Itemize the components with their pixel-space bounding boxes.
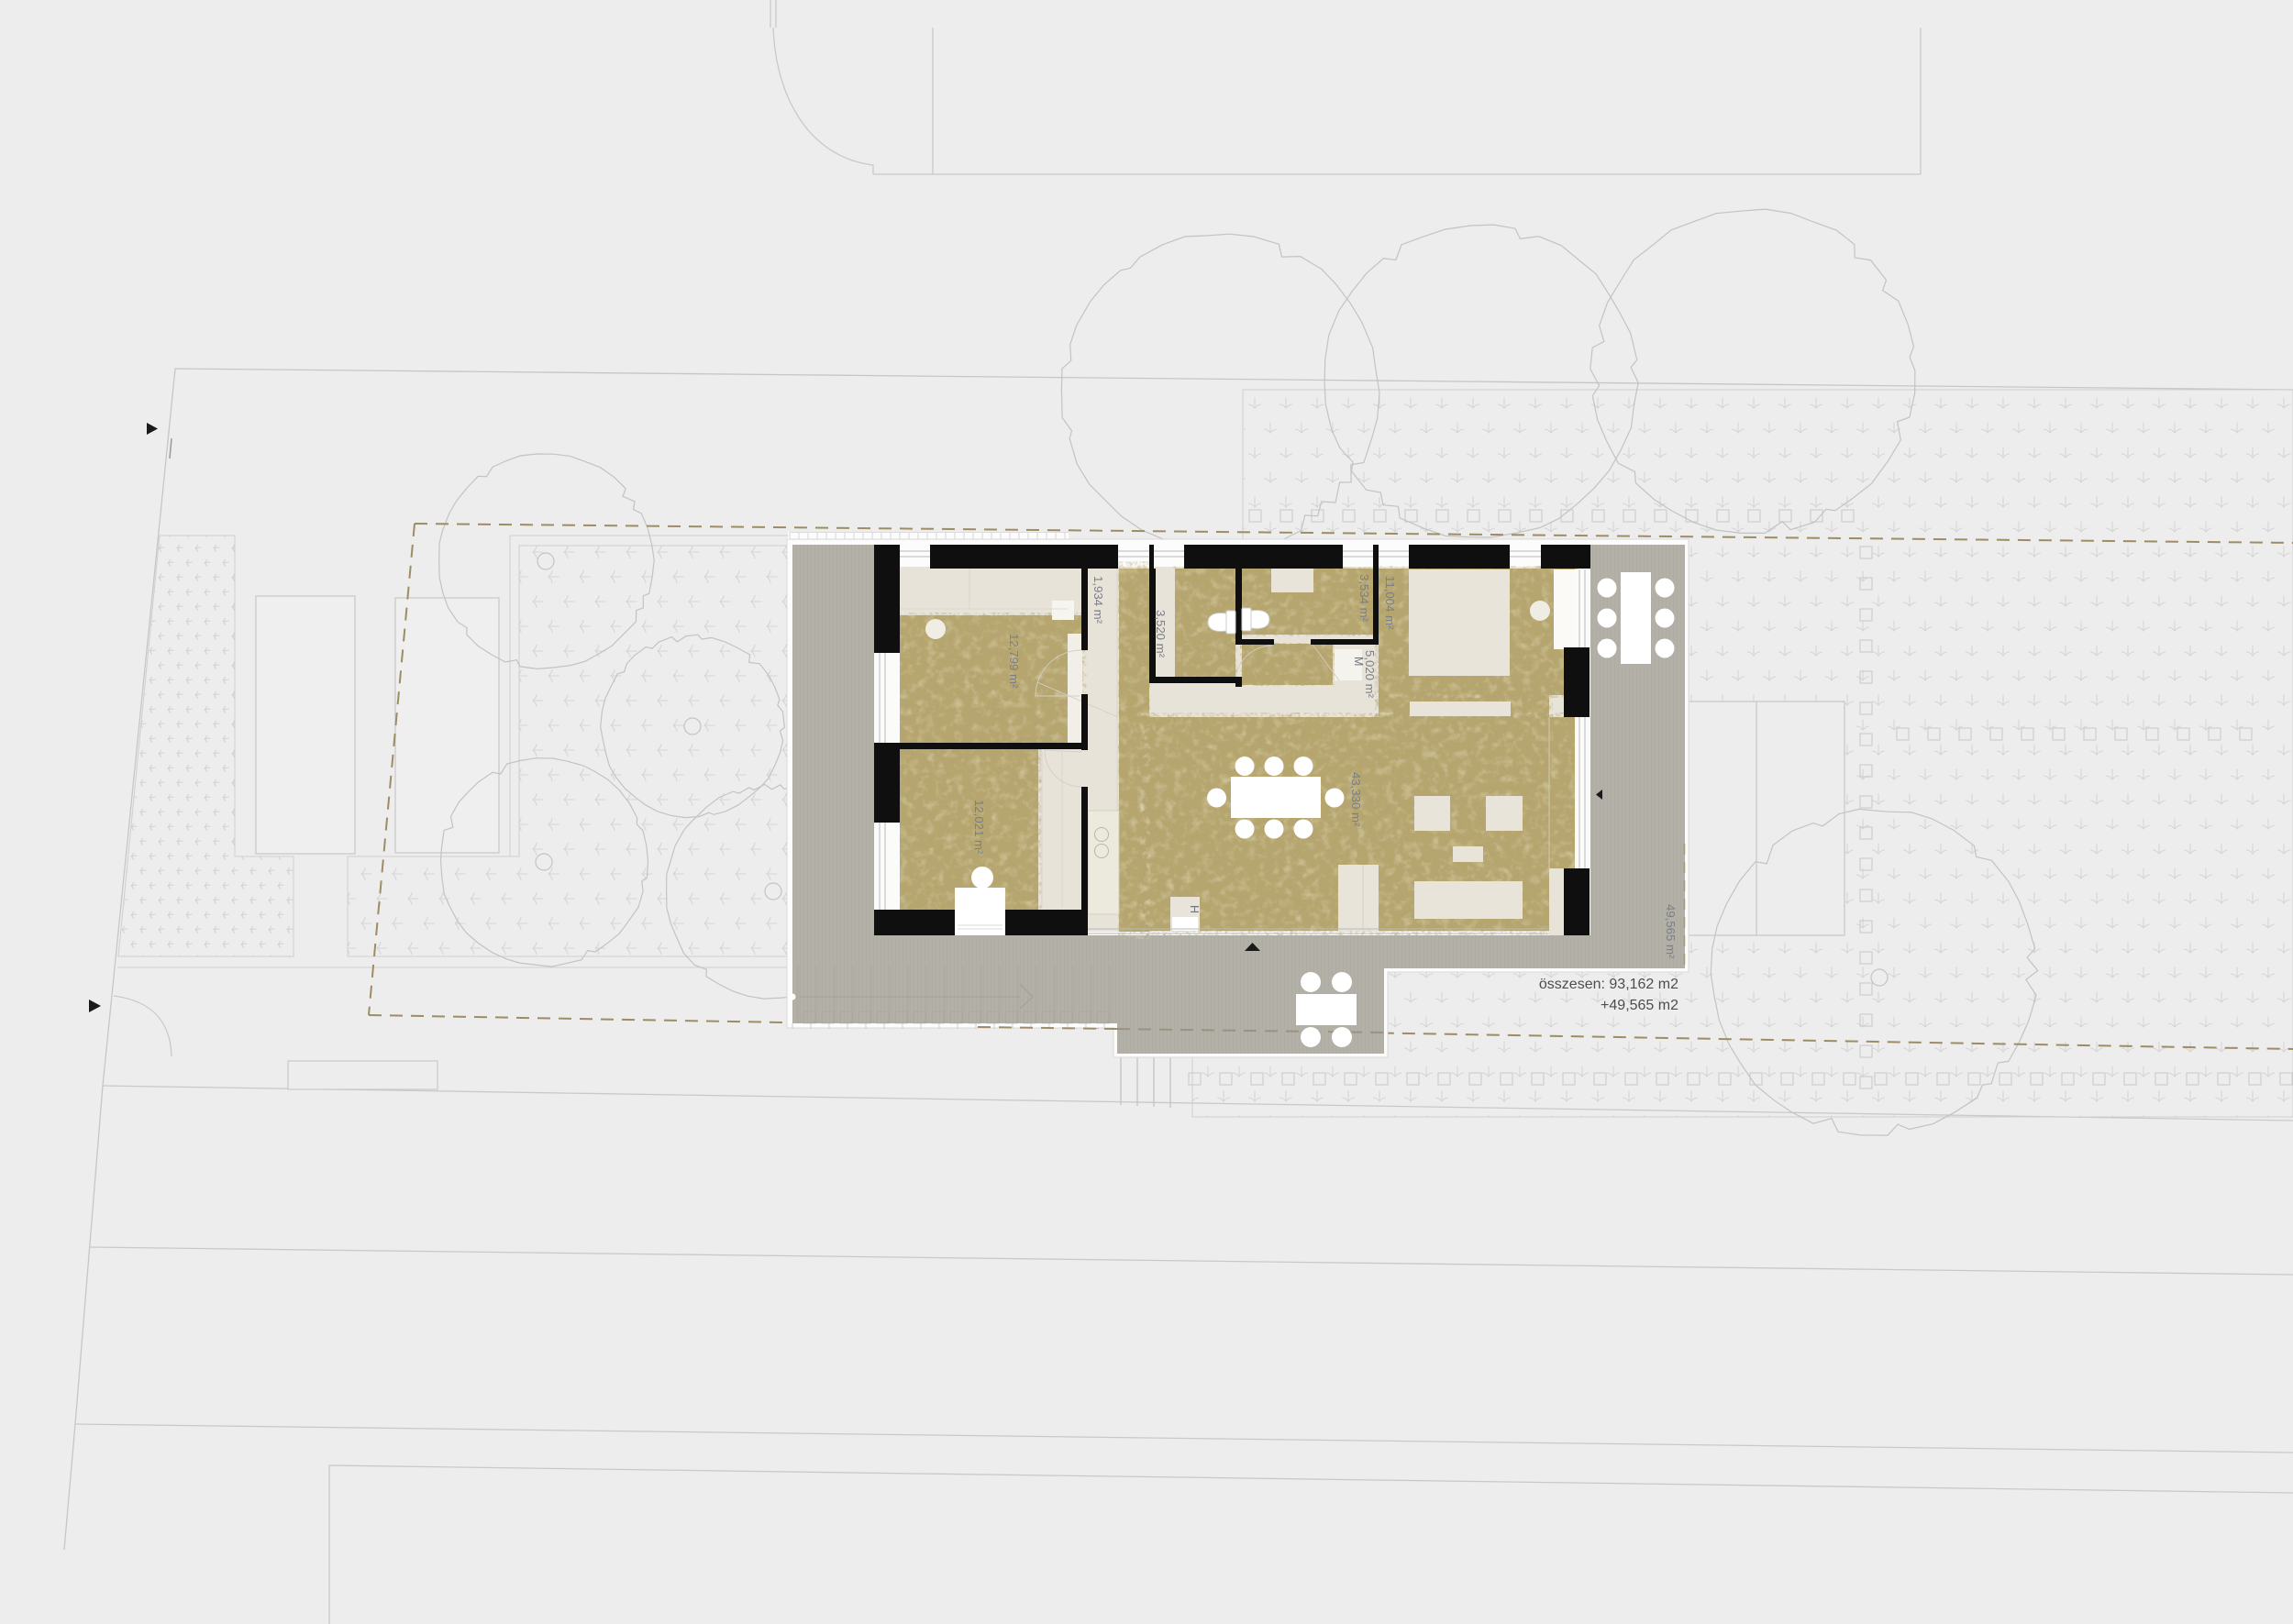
- svg-text:12,021 m²: 12,021 m²: [972, 800, 986, 855]
- svg-text:11,004 m²: 11,004 m²: [1383, 576, 1397, 630]
- svg-text:1,934 m²: 1,934 m²: [1091, 576, 1105, 624]
- svg-text:+49,565 m2: +49,565 m2: [1601, 998, 1678, 1013]
- svg-text:3,534 m²: 3,534 m²: [1357, 574, 1371, 623]
- svg-text:3,520 m²: 3,520 m²: [1154, 610, 1168, 658]
- svg-text:43,330 m²: 43,330 m²: [1349, 772, 1363, 827]
- svg-text:12,799 m²: 12,799 m²: [1007, 634, 1021, 689]
- svg-text:49,565 m²: 49,565 m²: [1664, 904, 1678, 959]
- svg-text:M: M: [1352, 657, 1365, 666]
- svg-text:5,020 m²: 5,020 m²: [1363, 650, 1377, 699]
- svg-text:összesen: 93,162 m2: összesen: 93,162 m2: [1539, 977, 1678, 992]
- svg-text:H: H: [1188, 905, 1201, 913]
